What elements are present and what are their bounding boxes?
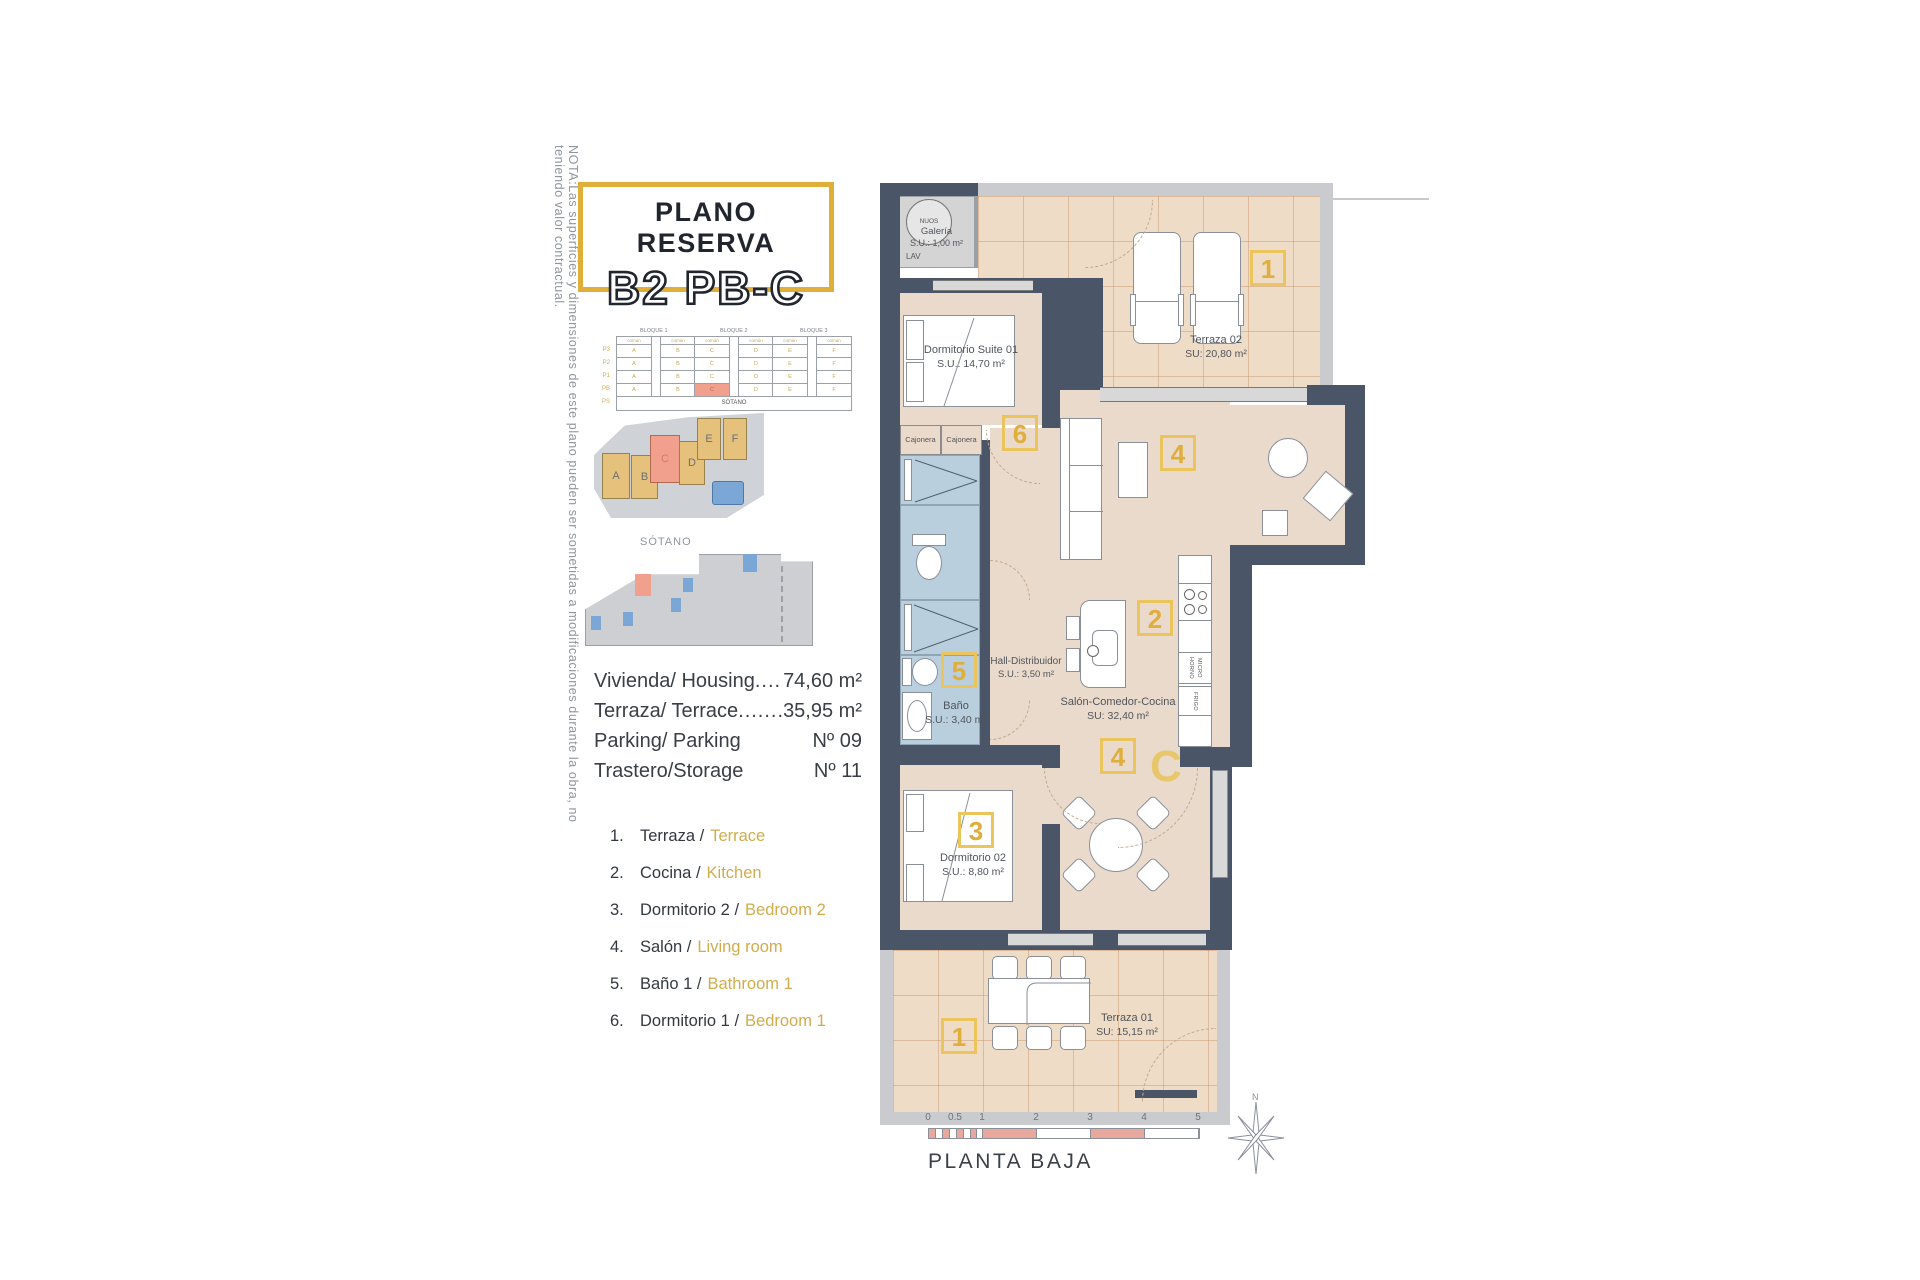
wardrobe-icon (900, 455, 980, 505)
summary-value: Nº 09 (812, 726, 862, 756)
legend-number: 5. (610, 966, 640, 1003)
summary-label: Trastero/Storage (594, 756, 743, 786)
sotano-diagram (585, 554, 813, 646)
sotano-blue-cell (683, 578, 693, 592)
room-name: Dormitorio Suite 01 (898, 344, 1044, 358)
stool-icon (1066, 648, 1080, 672)
legend-item-4: 4. Salón / Living room (610, 929, 826, 966)
floor-label: P3 (592, 344, 610, 357)
site-pool (712, 481, 744, 505)
scale-bar (928, 1128, 1200, 1139)
site-block-f: F (723, 418, 747, 460)
legend-item-3: 3. Dormitorio 2 / Bedroom 2 (610, 892, 826, 929)
summary-label: Terraza/ Terrace (594, 696, 738, 726)
cajonera-drawer: Cajonera (941, 425, 982, 455)
scale-tick: 1 (979, 1112, 985, 1123)
wall-suite-right (1042, 278, 1060, 428)
room-legend: 1. Terraza / Terrace 2. Cocina / Kitchen… (610, 818, 826, 1040)
scale-tick: 2 (1033, 1112, 1039, 1123)
legend-english: Kitchen (707, 855, 762, 892)
room-label-terraza02: Terraza 02 SU: 20,80 m² (1146, 334, 1286, 361)
badge-bano: 5 (941, 652, 977, 688)
legend-spanish: Salón / (640, 929, 691, 966)
legend-number: 1. (610, 818, 640, 855)
room-area: SU: 32,40 m² (1044, 710, 1192, 723)
floor-label: P1 (592, 370, 610, 383)
sotano-shape (585, 554, 813, 646)
badge-dormitorio-2: 3 (958, 812, 994, 848)
badge-salon-top: 4 (1160, 435, 1196, 471)
sotano-label: SÓTANO (640, 536, 692, 548)
window-living-terrace (1100, 387, 1307, 402)
floor-label: PS (592, 396, 610, 409)
legend-english: Bathroom 1 (707, 966, 792, 1003)
floor-label: P2 (592, 357, 610, 370)
bloque-3-label: BLOQUE 3 (800, 328, 828, 334)
room-area: S.U.: 8,80 m² (900, 866, 1046, 879)
unit-code: B2 PB-C (583, 261, 829, 315)
legend-english: Living room (697, 929, 782, 966)
oven-micro-unit: HORNO MICRO (1178, 652, 1212, 684)
room-area: S.U.: 14,70 m² (898, 358, 1044, 371)
summary-row-housing: Vivienda/ Housing ....... 74,60 m² (594, 666, 862, 696)
window-salon-terrace (1118, 933, 1206, 946)
legend-item-5: 5. Baño 1 / Bathroom 1 (610, 966, 826, 1003)
wall-bath-dorm-divider (880, 745, 1060, 765)
legend-spanish: Cocina / (640, 855, 701, 892)
toilet-tank-icon (912, 534, 946, 546)
chair-icon (1060, 956, 1086, 980)
toilet-tank-icon (902, 658, 912, 686)
floor-label: PB (592, 383, 610, 396)
legend-item-6: 6. Dormitorio 1 / Bedroom 1 (610, 1003, 826, 1040)
summary-label: Parking/ Parking (594, 726, 741, 756)
legend-english: Bedroom 1 (745, 1003, 826, 1040)
compass-north-label: N (1252, 1092, 1259, 1102)
chair-icon (1026, 1026, 1052, 1050)
boundary-line (1333, 198, 1429, 200)
summary-value: 35,95 m² (783, 696, 862, 726)
oven-label: HORNO (1188, 653, 1194, 683)
legend-number: 4. (610, 929, 640, 966)
scale-tick: 0.5 (948, 1112, 962, 1123)
room-label-suite: Dormitorio Suite 01 S.U.: 14,70 m² (898, 344, 1044, 371)
toilet-icon (912, 658, 938, 686)
scale-tick: 5 (1195, 1112, 1201, 1123)
legend-spanish: Dormitorio 2 / (640, 892, 739, 929)
sun-lounger-icon (1193, 232, 1241, 344)
room-label-dorm02: Dormitorio 02 S.U.: 8,80 m² (900, 852, 1046, 879)
sotano-blue-cell (591, 616, 601, 630)
wc-room-floor (900, 505, 980, 600)
summary-label: Vivienda/ Housing (594, 666, 755, 696)
badge-dormitorio-1: 6 (1002, 415, 1038, 451)
badge-salon-bottom: 4 (1100, 738, 1136, 774)
stool-icon (1262, 510, 1288, 536)
legend-spanish: Dormitorio 1 / (640, 1003, 739, 1040)
legend-item-1: 1. Terraza / Terrace (610, 818, 826, 855)
legend-spanish: Terraza / (640, 818, 704, 855)
room-label-terraza01: Terraza 01 SU: 15,15 m² (1056, 1012, 1198, 1039)
stool-icon (1066, 616, 1080, 640)
room-area: SU: 15,15 m² (1056, 1026, 1198, 1039)
summary-row-terrace: Terraza/ Terrace ............. 35,95 m² (594, 696, 862, 726)
room-name: Dormitorio 02 (900, 852, 1046, 866)
site-block-e: E (697, 418, 721, 460)
dots-leader (741, 726, 813, 756)
cajonera-drawer: Cajonera (900, 425, 941, 455)
legend-spanish: Baño 1 / (640, 966, 701, 1003)
wall-left (880, 183, 900, 948)
legend-number: 3. (610, 892, 640, 929)
sotano-blue-cell (671, 598, 681, 612)
scale-tick: 0 (925, 1112, 931, 1123)
galeria-name: Galería (898, 226, 975, 238)
pillow-icon (906, 794, 924, 832)
entrance-door-letter: C (1150, 742, 1182, 792)
legend-number: 6. (610, 1003, 640, 1040)
wall-kitchen-right (1230, 545, 1252, 767)
legend-number: 2. (610, 855, 640, 892)
summary-value: 74,60 m² (783, 666, 862, 696)
galeria-area: S.U.: 1,00 m² (898, 238, 975, 249)
sofa-icon (1060, 418, 1102, 560)
sotano-highlight-cell (635, 574, 651, 596)
fridge-label: FRIGO (1192, 687, 1198, 715)
room-label-salon: Salón-Comedor-Cocina SU: 32,40 m² (1044, 696, 1192, 723)
toilet-icon (916, 546, 942, 580)
window-dorm02-terrace (1008, 933, 1093, 946)
side-table-icon (1268, 438, 1308, 478)
scale-tick: 3 (1087, 1112, 1093, 1123)
wall-wing-right (1345, 385, 1365, 565)
room-name: Salón-Comedor-Cocina (1044, 696, 1192, 710)
legend-english: Terrace (710, 818, 765, 855)
room-name: Terraza 01 (1056, 1012, 1198, 1026)
wall-galeria-right (975, 196, 978, 268)
dots-leader: ............. (738, 696, 783, 726)
summary-value: Nº 11 (814, 756, 862, 786)
sotano-blue-cell (743, 554, 757, 572)
sotano-ramp-dashed (781, 566, 807, 642)
summary-row-storage: Trastero/Storage Nº 11 (594, 756, 862, 786)
sun-lounger-icon (1133, 232, 1181, 344)
disclaimer-vertical-note: NOTA:Las superficies y dimensiones de es… (552, 145, 580, 875)
cooktop-icon (1178, 583, 1212, 621)
summary-row-parking: Parking/ Parking Nº 09 (594, 726, 862, 756)
dots-leader (743, 756, 814, 786)
title-box: PLANO RESERVA B2 PB-C (578, 182, 834, 292)
entrance-door-leaf (1212, 770, 1228, 878)
shower-icon (900, 600, 980, 655)
bloque-1-label: BLOQUE 1 (640, 328, 668, 334)
terrace-parapet-right (1320, 183, 1333, 388)
room-name: Terraza 02 (1146, 334, 1286, 348)
chair-icon (992, 1026, 1018, 1050)
summary-block: Vivienda/ Housing ....... 74,60 m² Terra… (594, 666, 862, 786)
terrace1-parapet-right (1217, 950, 1230, 1125)
chair-icon (992, 956, 1018, 980)
compass-icon (1226, 1102, 1286, 1174)
site-block-c-selected: C (650, 435, 680, 483)
bloque-2-label: BLOQUE 2 (720, 328, 748, 334)
tv-unit-icon (1118, 442, 1148, 498)
scale-tick: 4 (1141, 1112, 1147, 1123)
building-elevation-chart: BLOQUE 1 BLOQUE 2 BLOQUE 3 común común c… (592, 328, 878, 420)
floor-name: PLANTA BAJA (928, 1150, 1093, 1174)
badge-terraza-01: 1 (941, 1018, 977, 1054)
site-block-a: A (602, 453, 630, 499)
chair-icon (1026, 956, 1052, 980)
elevation-sotano-row: SÓTANO (616, 396, 852, 411)
sotano-blue-cell (623, 612, 633, 626)
terrace1-parapet-left (880, 948, 893, 1125)
legend-item-2: 2. Cocina / Kitchen (610, 855, 826, 892)
window-suite (933, 280, 1033, 291)
legend-english: Bedroom 2 (745, 892, 826, 929)
site-plan-diagram: A B C D E F (594, 413, 764, 518)
dots-leader: ....... (755, 666, 783, 696)
plan-title: PLANO RESERVA (583, 197, 829, 259)
terrace1-parapet-bottom (880, 1112, 1230, 1125)
room-area: SU: 20,80 m² (1146, 348, 1286, 361)
badge-terraza-02: 1 (1250, 250, 1286, 286)
island-sink-icon (1092, 630, 1118, 666)
washer-label: LAV (906, 252, 921, 261)
micro-label: MICRO (1196, 653, 1202, 683)
wall-galeria-top (893, 183, 978, 196)
badge-cocina: 2 (1137, 600, 1173, 636)
floor-plan-page: NOTA:Las superficies y dimensiones de es… (0, 0, 1920, 1280)
